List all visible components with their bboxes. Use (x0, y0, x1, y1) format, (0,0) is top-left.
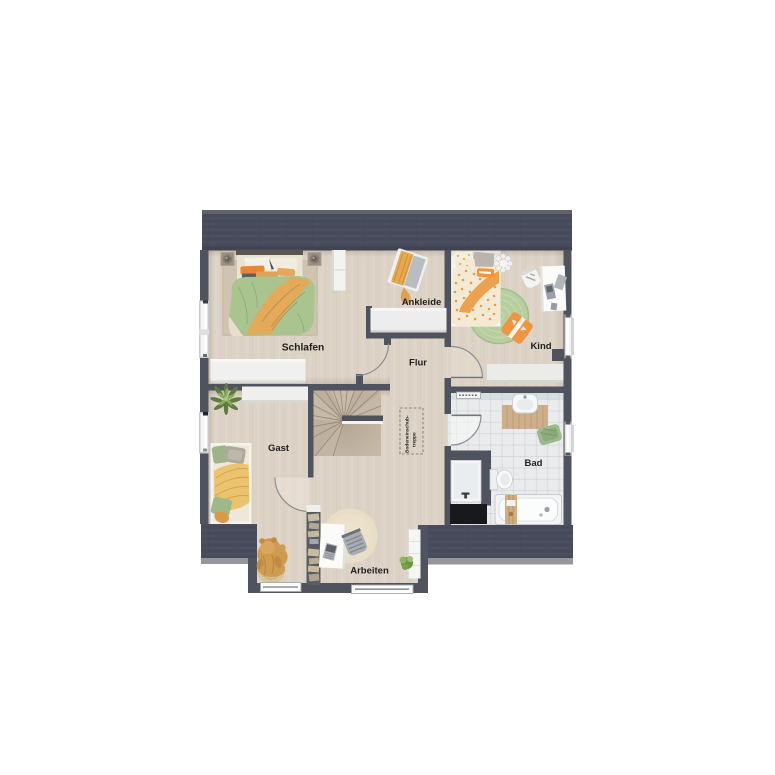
svg-text:Bad: Bad (525, 458, 543, 469)
svg-text:Arbeiten: Arbeiten (350, 566, 389, 577)
svg-text:Kind: Kind (530, 341, 551, 352)
svg-text:treppe: treppe (412, 432, 418, 447)
svg-text:Bodeneinschub-: Bodeneinschub- (405, 415, 411, 453)
svg-text:Ankleide: Ankleide (402, 297, 442, 308)
svg-text:Gast: Gast (268, 443, 290, 454)
svg-text:Schlafen: Schlafen (282, 343, 324, 354)
svg-text:Flur: Flur (409, 358, 427, 369)
